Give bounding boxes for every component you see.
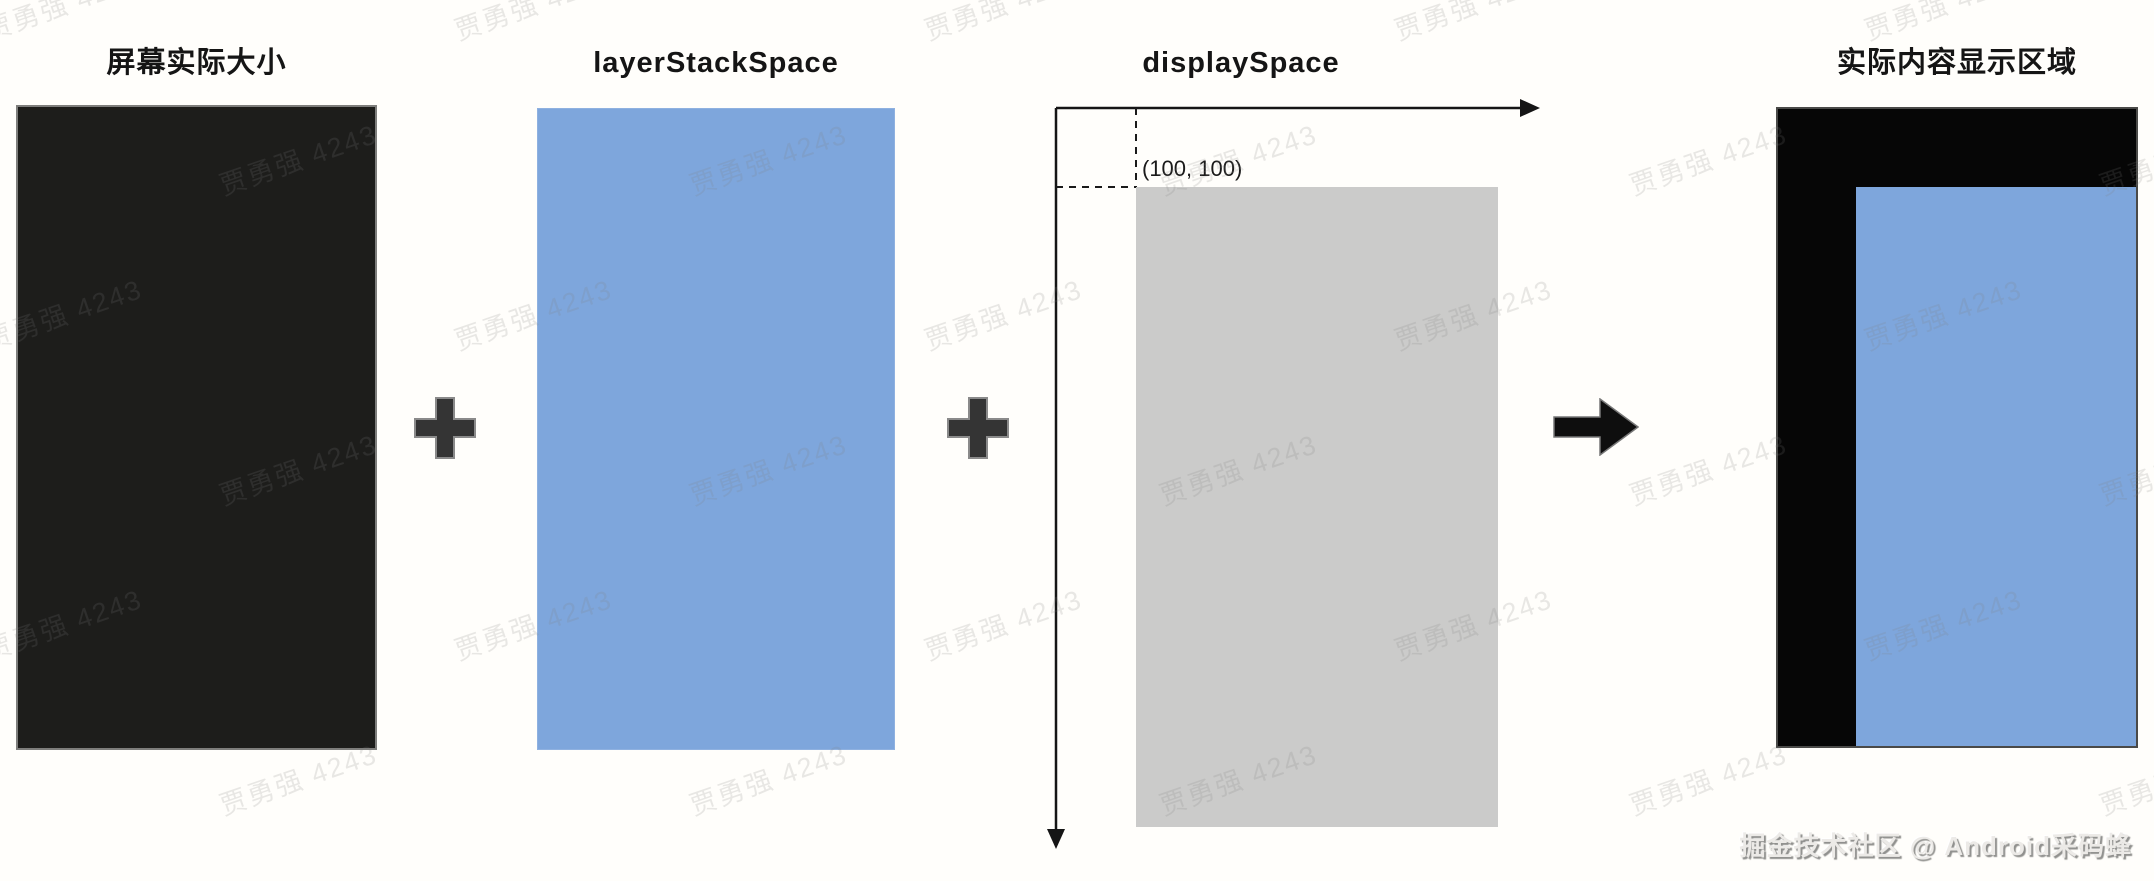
displayspace-rect xyxy=(1136,187,1498,827)
y-axis-arrowhead xyxy=(1047,829,1065,849)
watermark-text: 贾勇强 4243 xyxy=(449,0,617,48)
screen-panel-title: 屏幕实际大小 xyxy=(16,46,377,80)
watermark-text: 贾勇强 4243 xyxy=(1624,732,1792,822)
credit-watermark: 掘金技术社区 @ Android采码蜂 xyxy=(1740,826,2132,863)
result-content-rect xyxy=(1856,187,2136,746)
arrow-right-icon xyxy=(1553,398,1639,456)
screen-size-rect xyxy=(16,105,377,750)
watermark-text: 贾勇强 4243 xyxy=(1859,0,2027,48)
watermark-text: 贾勇强 4243 xyxy=(1624,112,1792,202)
layerstack-panel-title: layerStackSpace xyxy=(537,46,895,80)
watermark-text: 贾勇强 4243 xyxy=(919,0,1087,48)
watermark-text: 贾勇强 4243 xyxy=(1624,422,1792,512)
origin-offset-label: (100, 100) xyxy=(1142,156,1242,182)
displayspace-panel-title: displaySpace xyxy=(1056,46,1426,80)
x-axis-arrowhead xyxy=(1520,99,1540,117)
plus-icon xyxy=(414,397,476,459)
diagram-canvas: 屏幕实际大小 layerStackSpace displaySpace 实际内容… xyxy=(0,0,2154,881)
result-panel-title: 实际内容显示区域 xyxy=(1776,46,2138,80)
layerstack-rect xyxy=(537,108,895,750)
watermark-text: 贾勇强 4243 xyxy=(0,0,147,48)
plus-icon xyxy=(947,397,1009,459)
watermark-text: 贾勇强 4243 xyxy=(1389,0,1557,48)
